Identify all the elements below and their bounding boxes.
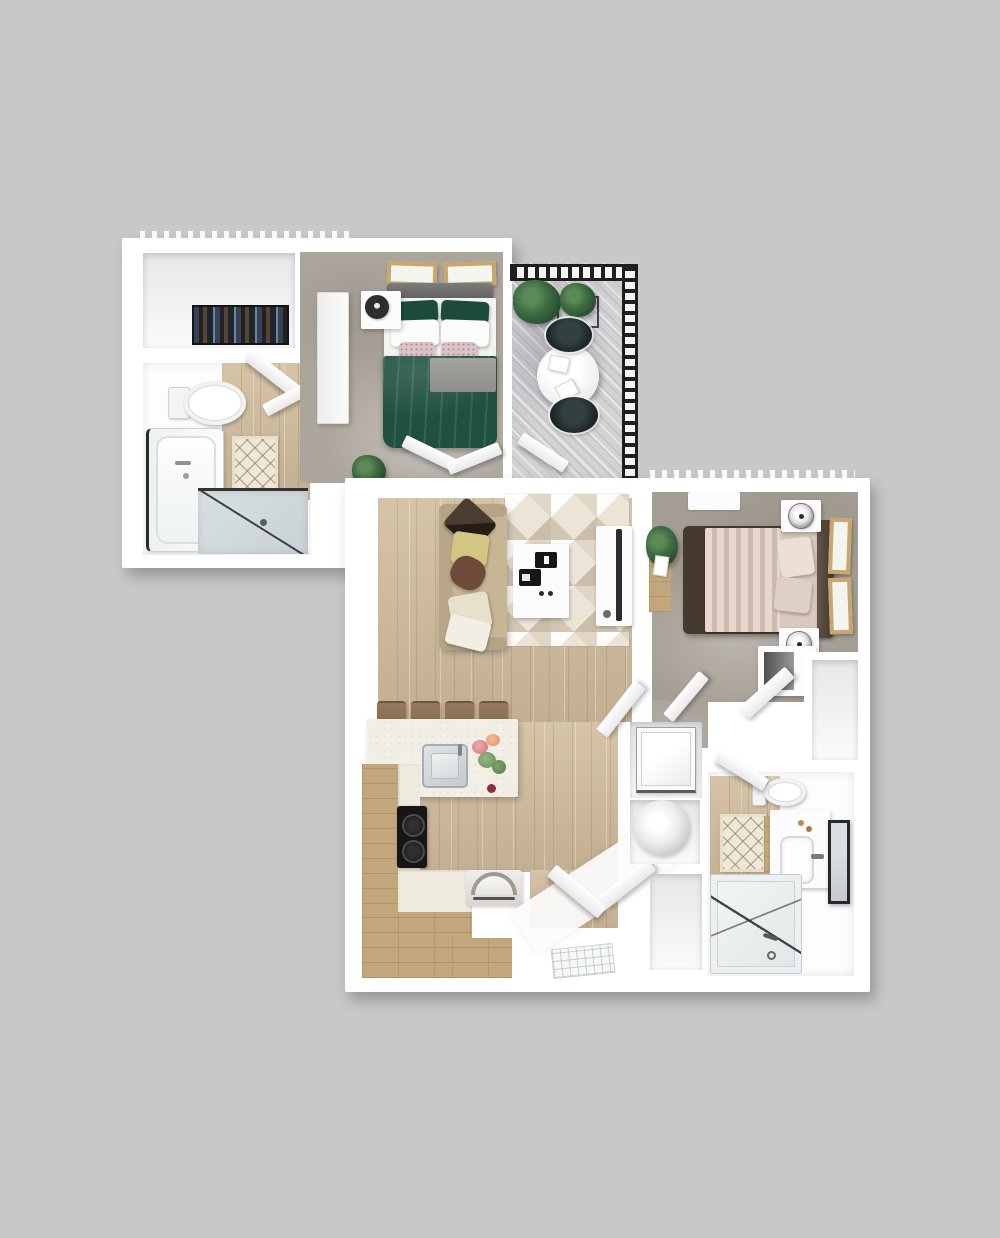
balcony-railing-right [622, 264, 638, 482]
bath-mat-b [720, 814, 766, 872]
tub-shower-b [710, 874, 802, 974]
washer [636, 727, 696, 793]
door-mat [551, 943, 616, 979]
floorplan-canvas [0, 0, 1000, 1238]
coaster-1 [539, 591, 544, 596]
range-oven [466, 870, 522, 906]
book-label [522, 574, 530, 581]
kitchen-sink [422, 744, 468, 788]
tv-console-knob [603, 610, 611, 618]
flower-peach [486, 734, 500, 746]
cafe-chair-1 [546, 318, 592, 352]
flower-red [487, 784, 496, 793]
toilet-a [184, 381, 246, 425]
coaster-2 [548, 591, 553, 596]
linen-closet [650, 874, 702, 970]
wardrobe-a [317, 292, 349, 424]
blush-pillow-2 [773, 576, 812, 614]
flower-bouquet [470, 734, 516, 794]
unit-a-roof-ticks [140, 231, 355, 238]
tub-drain-a [183, 473, 189, 479]
vanity-faucet [811, 854, 824, 859]
picture-frame-b1 [828, 518, 852, 575]
table-fan [365, 295, 389, 319]
flower-leaf-2 [492, 760, 506, 774]
unit-b-roof-ticks [650, 470, 855, 478]
kitchen-counter-bottom-top [398, 870, 472, 914]
kitchen-cabinet-step [452, 938, 512, 978]
picture-frame-b2 [828, 578, 853, 635]
clothes-rack [192, 305, 289, 345]
tub-faucet-a [175, 461, 191, 465]
unit-b-outline [345, 478, 870, 992]
bath-mat-a [232, 436, 278, 494]
cooktop [397, 806, 427, 868]
tv [616, 529, 622, 621]
balcony-plant-2 [560, 283, 596, 317]
tv-console [596, 526, 632, 626]
book [519, 569, 541, 586]
console-item [653, 555, 670, 577]
blush-duvet [705, 528, 781, 632]
tablet [535, 552, 557, 568]
gray-blanket [430, 358, 496, 392]
shower-glass-edge [198, 491, 308, 554]
soap-1 [798, 820, 804, 826]
tub-knob-b [767, 951, 776, 960]
vanity-mirror [828, 820, 850, 904]
shower-drain [260, 519, 267, 526]
soap-2 [806, 826, 812, 832]
walkin-closet-b [812, 660, 858, 760]
balcony-railing-top [510, 264, 638, 281]
tub-glass-panel-2 [711, 875, 801, 973]
balcony [505, 260, 640, 486]
balcony-plant-1 [513, 280, 561, 324]
blush-pillow-1 [777, 536, 816, 578]
table-lamp-1 [789, 504, 813, 528]
glass-shower-a [198, 488, 308, 554]
dryer [634, 800, 690, 856]
bedroom-window [688, 492, 740, 510]
cafe-chair-2 [550, 397, 598, 433]
toilet-b [764, 778, 806, 806]
tablet-screen [544, 556, 549, 564]
